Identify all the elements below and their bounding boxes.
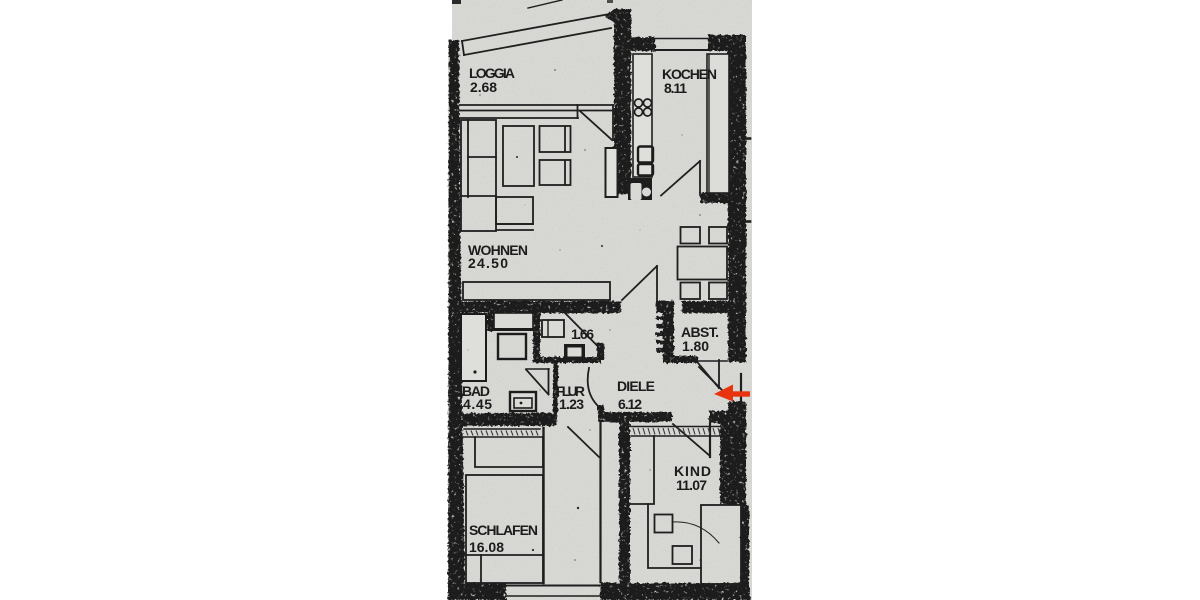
svg-text:1.23: 1.23 <box>559 396 584 412</box>
svg-text:2.68: 2.68 <box>470 79 497 95</box>
svg-text:SCHLAFEN: SCHLAFEN <box>469 522 538 538</box>
svg-text:8.11: 8.11 <box>664 80 687 96</box>
svg-text:1.66: 1.66 <box>571 326 594 342</box>
svg-text:6.12: 6.12 <box>618 396 642 412</box>
svg-text:1.80: 1.80 <box>682 338 709 354</box>
svg-text:11.07: 11.07 <box>676 477 707 493</box>
svg-text:4.45: 4.45 <box>463 396 492 412</box>
svg-text:24.50: 24.50 <box>468 255 508 271</box>
svg-text:DIELE: DIELE <box>617 378 655 394</box>
svg-text:16.08: 16.08 <box>469 539 504 555</box>
